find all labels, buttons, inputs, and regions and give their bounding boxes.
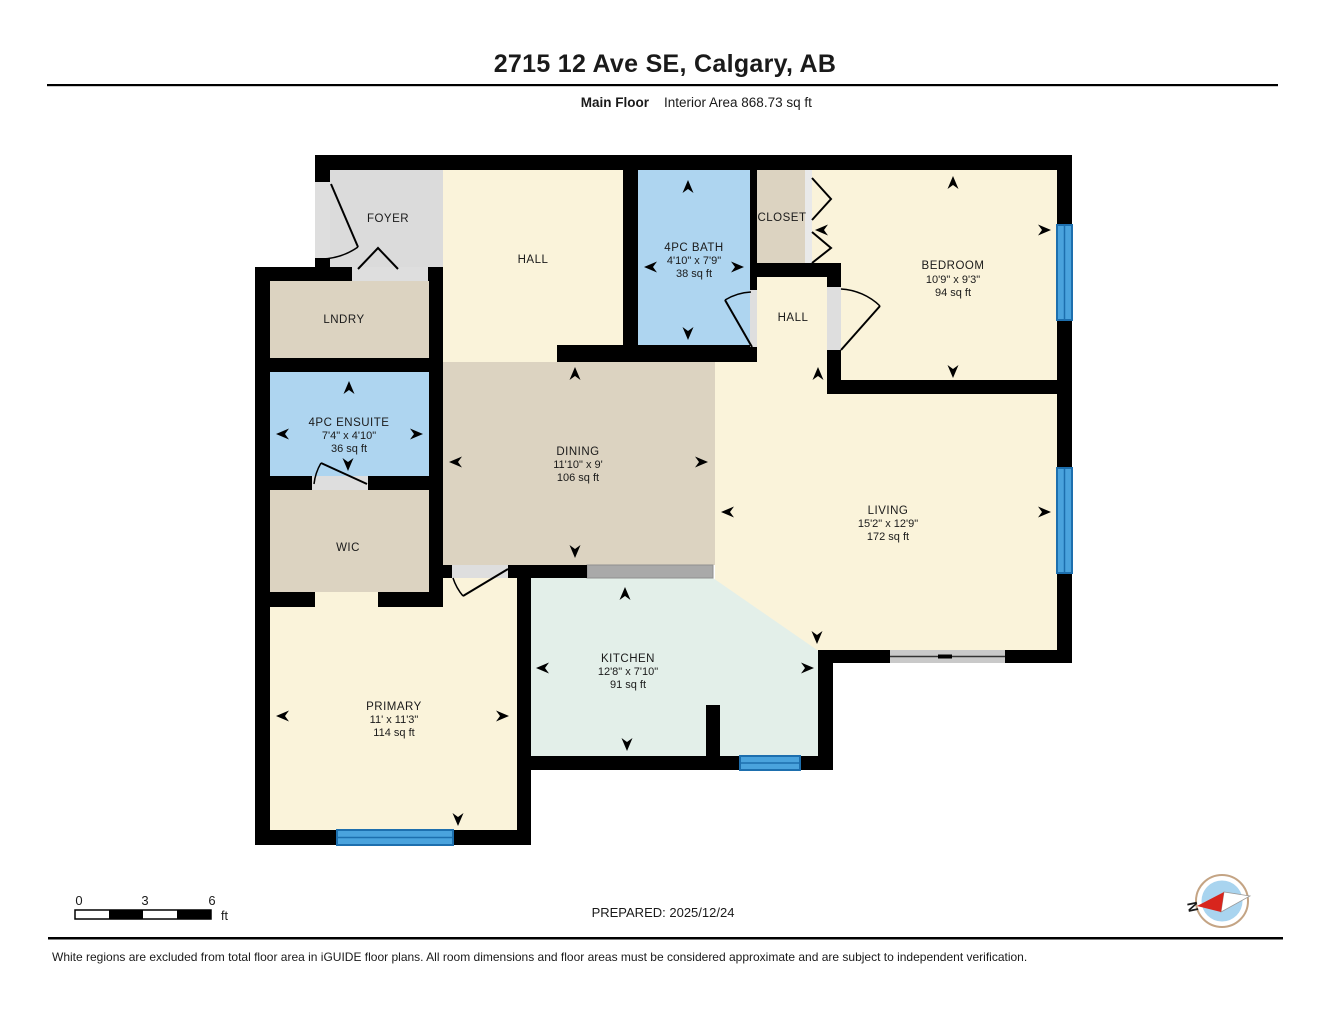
primary-area: 114 sq ft <box>373 727 414 739</box>
living-window <box>1057 468 1072 573</box>
bedroom-door-opening <box>827 287 841 350</box>
bedroom-dims: 10'9" x 9'3" <box>926 274 980 286</box>
entry-door-opening <box>315 182 330 258</box>
bedroom-area: 94 sq ft <box>935 287 971 299</box>
living-label: LIVING <box>868 505 909 517</box>
ensuite-label: 4PC ENSUITE <box>309 417 390 429</box>
scale-bar-segment <box>177 910 211 919</box>
kitchen-counter <box>587 565 713 578</box>
floor-label: Main Floor <box>581 95 650 110</box>
living-area: 172 sq ft <box>867 531 909 543</box>
disclaimer-text: White regions are excluded from total fl… <box>52 950 1027 964</box>
lndry-door-opening <box>352 267 428 281</box>
bedroom-label: BEDROOM <box>922 260 985 272</box>
kitchen-label: KITCHEN <box>601 653 655 665</box>
dining-area: 106 sq ft <box>557 472 599 484</box>
footer-divider <box>48 937 1283 940</box>
scale-unit-label: ft <box>221 909 228 923</box>
room-hall-main <box>443 170 623 362</box>
scale-tick-0: 0 <box>75 893 82 908</box>
scale-bar: 0 3 6 ft <box>75 893 228 923</box>
bedroom-window <box>1057 225 1072 320</box>
closet-label: CLOSET <box>757 212 806 224</box>
kitchen-dims: 12'8" x 7'10" <box>598 666 658 678</box>
wic-label: WIC <box>336 542 360 554</box>
living-dims: 15'2" x 12'9" <box>858 518 918 530</box>
interior-area-label: Interior Area 868.73 sq ft <box>664 95 812 110</box>
scale-tick-6: 6 <box>208 893 215 908</box>
header: 2715 12 Ave SE, Calgary, AB Main Floor I… <box>47 50 1278 110</box>
dining-dims: 11'10" x 9' <box>553 459 603 471</box>
hall-small-label: HALL <box>778 312 809 324</box>
page-title: 2715 12 Ave SE, Calgary, AB <box>494 50 837 78</box>
bath-label: 4PC BATH <box>664 242 723 254</box>
bath-area: 38 sq ft <box>676 268 712 280</box>
kitchen-area: 91 sq ft <box>610 679 646 691</box>
dining-label: DINING <box>556 446 599 458</box>
scale-tick-3: 3 <box>141 893 148 908</box>
primary-dims: 11' x 11'3" <box>370 714 419 726</box>
header-divider <box>47 84 1278 86</box>
floor-plan-page: 2715 12 Ave SE, Calgary, AB Main Floor I… <box>0 0 1325 1024</box>
scale-bar-segment <box>109 910 143 919</box>
bath-dims: 4'10" x 7'9" <box>667 255 721 267</box>
dining-door-opening <box>452 565 508 578</box>
room-wic <box>270 490 429 592</box>
primary-label: PRIMARY <box>366 701 422 713</box>
wic-passage <box>315 592 378 607</box>
kitchen-window <box>740 756 800 770</box>
compass-icon: N <box>1184 875 1250 927</box>
ensuite-door-opening <box>312 476 368 490</box>
bath-door-opening <box>750 290 757 347</box>
hall-main-label: HALL <box>518 254 549 266</box>
ensuite-dims: 7'4" x 4'10" <box>322 430 376 442</box>
lndry-label: LNDRY <box>323 314 364 326</box>
ensuite-area: 36 sq ft <box>331 443 367 455</box>
foyer-label: FOYER <box>367 213 409 225</box>
patio-sliding-door <box>890 650 1005 663</box>
prepared-date: PREPARED: 2025/12/24 <box>592 905 735 920</box>
primary-window <box>337 830 453 845</box>
